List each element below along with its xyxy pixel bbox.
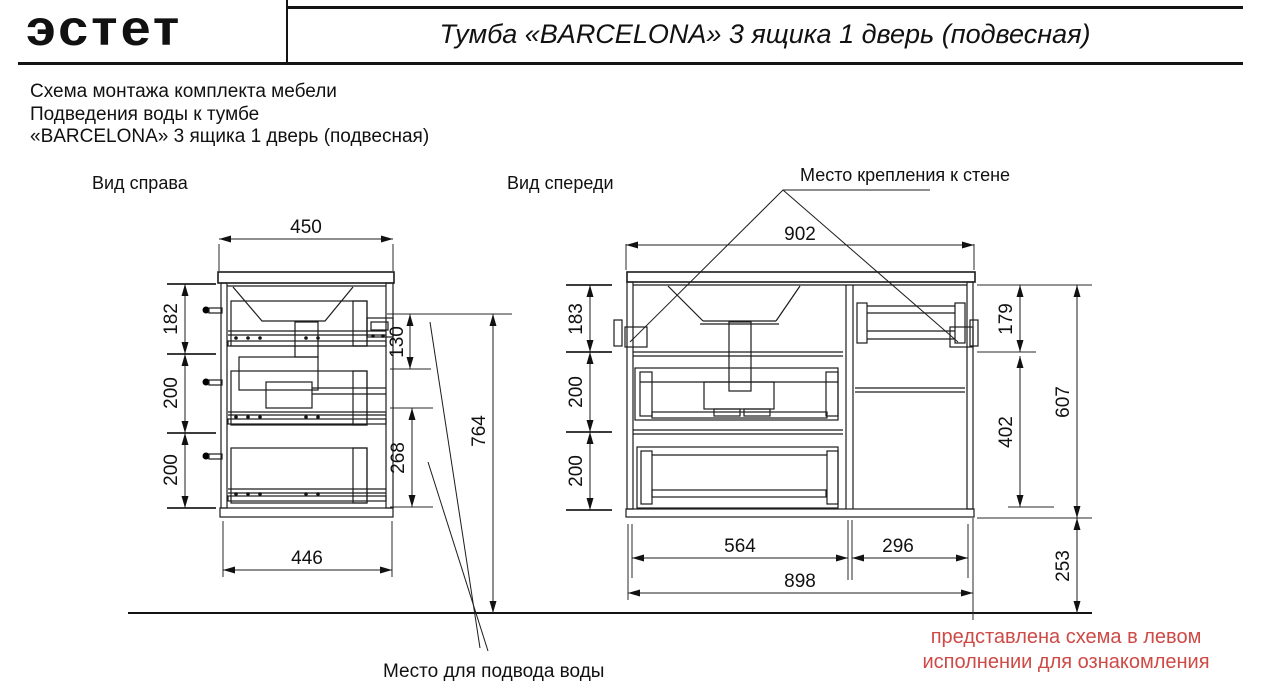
side-handles xyxy=(203,307,223,460)
side-countertop xyxy=(218,272,394,283)
dim-front-floor-gap: 253 xyxy=(1053,550,1074,582)
dim-side-seg2: 200 xyxy=(161,377,182,409)
water-leader-2 xyxy=(428,462,488,651)
dim-front-body-height: 607 xyxy=(1053,386,1074,418)
front-door-section xyxy=(855,303,965,392)
front-basin xyxy=(668,286,800,324)
side-drawer-2 xyxy=(228,371,386,425)
front-left-panel xyxy=(627,282,633,509)
dim-front-seg3: 200 xyxy=(566,455,587,487)
dim-side-seg1: 182 xyxy=(161,303,182,335)
technical-drawing: 450 182 200 200 130 268 764 xyxy=(0,0,1262,690)
front-bottom-panel xyxy=(626,509,974,517)
side-drawer-3 xyxy=(228,448,386,503)
wall-mount-leader-right xyxy=(783,190,958,342)
dim-front-door-width: 296 xyxy=(882,536,914,557)
dim-side-seg3: 200 xyxy=(161,454,182,486)
front-view-dimensions: 902 183 200 200 179 402 607 253 xyxy=(566,224,1092,620)
dim-front-seg2: 200 xyxy=(566,376,587,408)
front-drain-siphon xyxy=(704,322,774,416)
front-wall-bracket-left xyxy=(614,320,647,347)
dim-side-tap-drop: 130 xyxy=(387,326,408,358)
dim-front-seg1: 183 xyxy=(566,303,587,335)
dim-side-bottom-width: 446 xyxy=(291,548,323,569)
side-basin xyxy=(233,287,353,321)
dim-front-right-seg2: 402 xyxy=(996,416,1017,448)
dim-front-top-width: 902 xyxy=(784,224,816,245)
water-leader-1 xyxy=(430,322,480,648)
dim-side-wall-height: 764 xyxy=(469,415,490,447)
side-siphon-box xyxy=(266,382,312,408)
front-view-cabinet xyxy=(614,272,978,517)
front-right-panel xyxy=(967,282,973,509)
side-drawer-1 xyxy=(228,301,386,346)
wall-mount-leader-left xyxy=(630,190,930,342)
front-drawer-3 xyxy=(637,447,838,508)
dim-front-bottom-width: 898 xyxy=(784,571,816,592)
front-countertop xyxy=(627,272,975,282)
drawing-sheet: эстет Тумба «BARCELONA» 3 ящика 1 дверь … xyxy=(0,0,1262,690)
front-drawer-2 xyxy=(635,368,838,420)
side-bottom-panel xyxy=(220,508,393,517)
dim-front-drawer-width: 564 xyxy=(724,536,756,557)
side-view-cabinet xyxy=(203,272,395,517)
dim-front-right-seg1: 179 xyxy=(996,303,1017,335)
front-siphon-box xyxy=(704,382,774,409)
side-front-panel xyxy=(221,283,227,508)
dim-side-top-width: 450 xyxy=(290,217,322,238)
dim-side-drain-span: 268 xyxy=(388,442,409,474)
